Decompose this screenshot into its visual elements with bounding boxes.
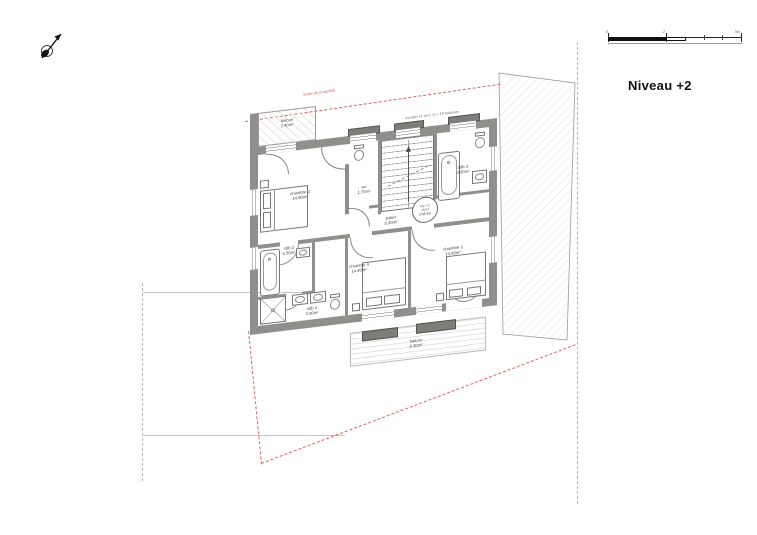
- toilet-symbol: [330, 298, 340, 310]
- room-label-wc: wc 1.70m²: [351, 183, 377, 197]
- scale-tick-label: 5m: [735, 30, 740, 34]
- scale-tick-label: 2: [663, 30, 665, 34]
- door-arc: [321, 144, 346, 172]
- partition-wall: [372, 226, 412, 235]
- nightstand-symbol: [260, 180, 269, 189]
- window: [362, 310, 394, 322]
- scale-bar-baseline: [608, 43, 742, 44]
- room-label-palier: palier 8.20m²: [376, 213, 406, 228]
- neighbour-building-hatch: [495, 70, 580, 345]
- property-line: [261, 344, 576, 464]
- toilet-tank-symbol: [475, 132, 485, 137]
- pillow-symbol: [449, 288, 463, 298]
- door-arc: [349, 205, 370, 229]
- window: [250, 189, 258, 216]
- nightstand-symbol: [436, 293, 444, 302]
- property-line: [248, 331, 262, 464]
- partition-wall: [312, 242, 315, 292]
- partition-wall: [298, 234, 350, 244]
- north-arrow-icon: [36, 30, 66, 64]
- shower-symbol: [260, 296, 286, 325]
- window: [489, 146, 497, 171]
- nightstand-symbol: [352, 303, 360, 312]
- door-arc: [350, 235, 373, 261]
- scale-bar-minitick: [704, 35, 705, 40]
- toilet-symbol: [354, 149, 364, 161]
- window: [250, 247, 258, 270]
- partition-wall: [456, 189, 489, 196]
- scale-bar-tick: [741, 33, 742, 42]
- scale-bar-minitick: [722, 35, 723, 40]
- scale-bar-segment: [666, 37, 686, 41]
- partition-wall: [408, 231, 411, 308]
- toilet-tank-symbol: [330, 293, 340, 298]
- wall: [250, 113, 258, 148]
- partition-wall: [434, 217, 489, 228]
- toilet-symbol: [475, 137, 485, 149]
- wall: [250, 147, 258, 335]
- toilet-tank-symbol: [354, 144, 364, 149]
- pillow-symbol: [467, 286, 481, 296]
- scale-bar-segment: [608, 37, 666, 41]
- building-plan: escalier +1 vers +2 = 14 hauteurs balcon…: [250, 118, 497, 335]
- window: [489, 236, 497, 263]
- partition-wall: [345, 238, 348, 315]
- window: [450, 121, 476, 132]
- door-arc: [412, 228, 435, 254]
- parcel-boundary-line-left: [142, 283, 143, 481]
- level-title: Niveau +2: [628, 78, 692, 93]
- room-label-sdb-4: sdb 4 3.00m²: [298, 304, 326, 318]
- context-line: [143, 435, 345, 436]
- floor-plan-sheet: 0 2 5m Niveau +2 limite de propriété: [0, 0, 757, 535]
- partition-wall: [345, 164, 349, 214]
- window: [416, 304, 442, 315]
- pillow-symbol: [263, 192, 271, 209]
- pillow-symbol: [263, 211, 271, 228]
- property-line-label: limite de propriété: [303, 87, 335, 97]
- pillow-symbol: [366, 296, 382, 307]
- scale-bar: 0 2 5m: [608, 30, 742, 48]
- window: [350, 133, 376, 144]
- door-arc: [266, 151, 289, 177]
- bed-line: [274, 189, 275, 231]
